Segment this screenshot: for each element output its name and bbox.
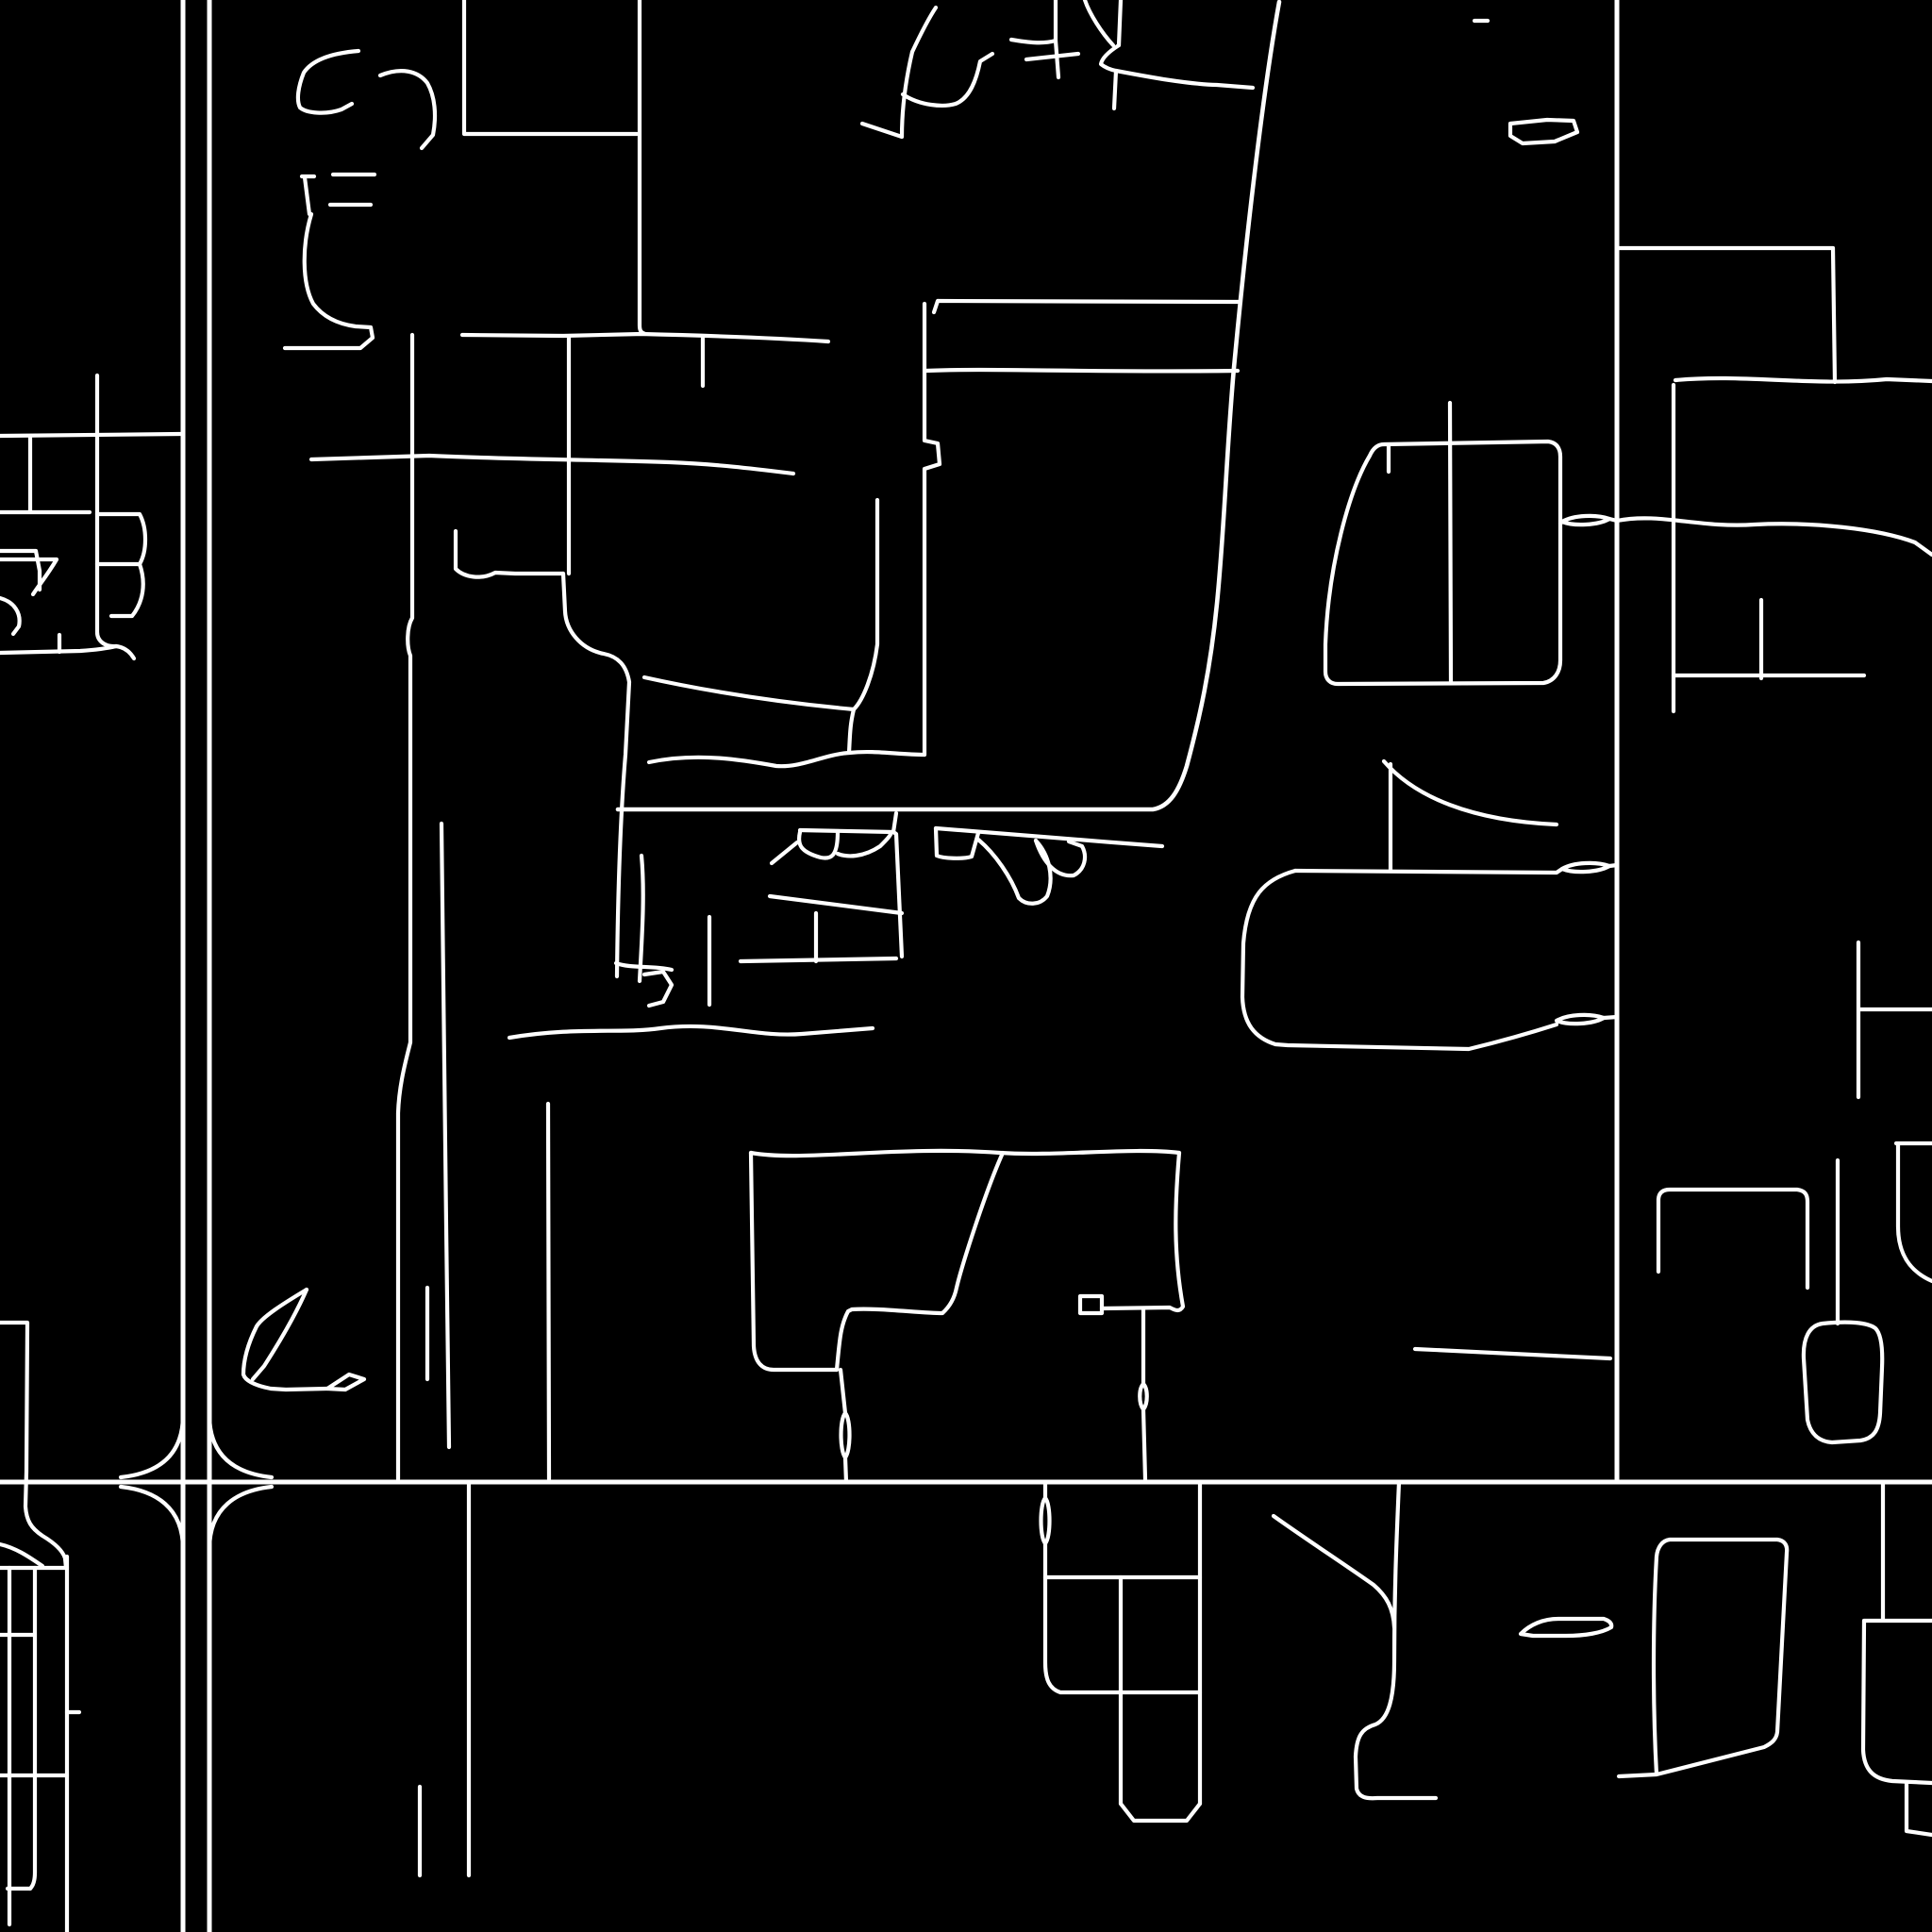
road-path-west-vert-103 <box>97 375 116 646</box>
road-path-quad-block <box>1619 1540 1787 1776</box>
road-path-wavy-405-east <box>1675 378 1932 382</box>
road-path-smile-curve <box>1384 761 1557 824</box>
road-path-petal-3 <box>1036 841 1085 875</box>
road-path-estate-left <box>751 1153 837 1370</box>
road-path-median-lens-918 <box>1562 863 1609 872</box>
road-path-center-road-718 <box>644 677 854 709</box>
road-path-median-lens-1108 <box>1041 1498 1050 1543</box>
road-path-rounded-rect-block <box>1325 441 1560 684</box>
road-path-blob-vertical <box>1356 1482 1436 1798</box>
road-path-median-lens-896 <box>841 1413 850 1457</box>
road-path-row-1023 <box>616 963 672 970</box>
road-path-diag-dash-1435 <box>1415 1349 1610 1358</box>
road-path-intersection-flare-nw <box>121 1415 183 1477</box>
road-path-branch-east-upper <box>1617 248 1835 382</box>
road-path-tr-polygon <box>1510 120 1577 143</box>
road-path-estate-mid <box>837 1153 1003 1370</box>
road-path-sloped-487 <box>311 456 793 474</box>
road-path-road-y393 <box>925 370 1238 371</box>
road-network-svg <box>0 0 1932 1932</box>
road-path-center-wavy-805 <box>649 752 924 766</box>
road-path-stadium-top <box>1295 869 1562 873</box>
road-path-right-corner-piece <box>1896 1143 1932 1281</box>
road-path-vert-468 <box>441 824 449 1447</box>
road-path-intersection-flare-se <box>209 1487 272 1549</box>
road-path-wavy-605 <box>456 531 563 577</box>
road-path-teeth-row-east <box>936 828 1162 846</box>
road-path-topc-finger-c <box>862 124 902 137</box>
road-path-median-lens-1212 <box>1140 1384 1147 1409</box>
road-path-topc-east-diag <box>1116 71 1253 88</box>
road-path-road-y319 <box>934 301 1241 312</box>
road-path-right-steps <box>1863 1482 1932 1835</box>
road-path-topc-finger-b <box>903 54 992 106</box>
road-path-egg-loop <box>1804 1323 1882 1442</box>
road-path-center-vert-930 <box>849 500 877 753</box>
road-path-west-road-690 <box>0 646 134 658</box>
road-path-nw-s-hook <box>298 51 358 113</box>
road-path-stadium-bottom-link <box>1604 1017 1617 1018</box>
road-path-topc-diag <box>1085 0 1113 45</box>
road-path-topc-finger-d <box>912 8 936 52</box>
road-path-topc-cross <box>1026 54 1078 59</box>
road-path-teeth-spur-sw <box>772 842 797 863</box>
road-path-banana-loop <box>1521 1619 1611 1636</box>
road-path-vert-437-jog <box>398 335 412 1479</box>
road-path-blgrid-approach <box>0 1323 66 1568</box>
road-map-canvas[interactable] <box>0 0 1932 1932</box>
road-path-teeth-row-west-drop <box>893 832 902 957</box>
road-path-leaf-diamond <box>327 1374 364 1390</box>
road-path-west-ladder <box>0 438 145 616</box>
road-path-cul-lobe-2 <box>838 832 891 856</box>
road-path-vert-582 <box>548 1104 549 1479</box>
road-path-topc-vert-1188 <box>1119 0 1121 45</box>
road-path-block-grid-sloped <box>770 896 902 913</box>
road-path-block-grid-hook <box>644 972 672 1006</box>
road-path-nw-block-rows <box>302 175 375 214</box>
road-path-snake-655 <box>563 574 629 976</box>
road-path-sgrid-bottom <box>1121 1804 1200 1821</box>
road-path-leaf-swoosh <box>253 1290 307 1379</box>
road-path-median-lens-1080 <box>1557 1015 1604 1024</box>
road-path-blgrid-approach2 <box>0 1544 42 1566</box>
road-path-estate-top <box>751 1151 1179 1156</box>
road-path-nw-arc <box>380 71 435 148</box>
road-path-right-tee <box>1858 942 1932 1097</box>
road-path-teeth-row-west <box>800 813 896 832</box>
road-path-median-lens-553 <box>1562 516 1609 525</box>
road-path-estate-square <box>1080 1296 1102 1313</box>
road-path-topc-spur <box>1011 40 1056 42</box>
road-path-cul-lobe-1 <box>799 832 838 858</box>
road-path-rounded-rect-divider <box>1450 403 1451 683</box>
road-path-vert-680-low <box>640 856 643 981</box>
road-path-wavy-1096 <box>509 1026 873 1038</box>
road-path-intersection-flare-sw <box>121 1487 183 1549</box>
road-path-arc-collector-road <box>618 2 1279 809</box>
road-path-blob-west-curve <box>1274 1516 1394 1627</box>
road-path-west-road-462 <box>0 434 181 436</box>
road-path-blgrid-cols <box>9 1557 67 1932</box>
road-path-stadium-top-link <box>1609 865 1617 866</box>
road-path-vert-678 <box>640 0 645 334</box>
road-path-estate-right <box>1102 1153 1183 1310</box>
road-path-topc-zigzag <box>1101 45 1119 108</box>
road-path-nw-c-curve <box>285 214 373 348</box>
road-path-stadium-left-bottom <box>1242 871 1557 1049</box>
road-path-cap-shape <box>1658 1190 1807 1288</box>
road-path-intersection-flare-ne <box>209 1415 272 1477</box>
road-path-block-grid-row <box>741 958 896 961</box>
road-path-vert-492-top <box>464 0 637 134</box>
